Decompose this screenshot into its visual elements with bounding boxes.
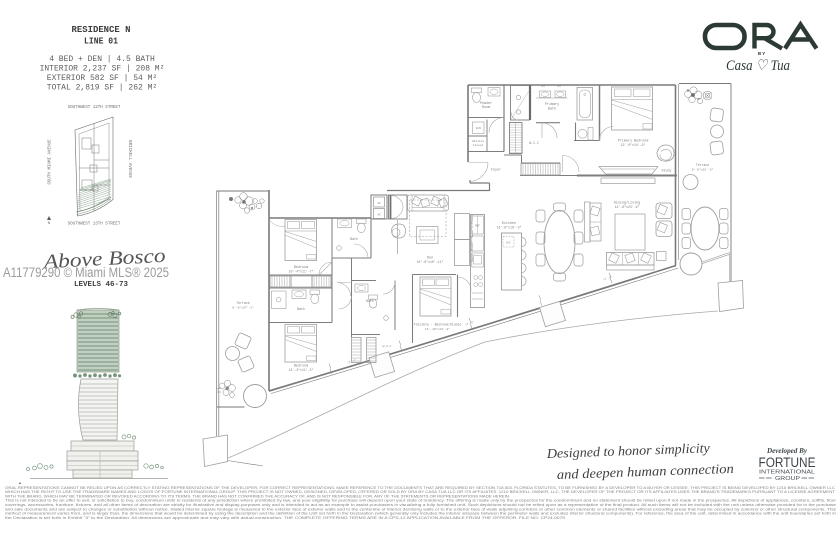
svg-text:Utility: Utility <box>472 139 484 143</box>
svg-text:9'-8"x27'-1": 9'-8"x27'-1" <box>232 305 254 309</box>
svg-text:REF: REF <box>475 225 480 228</box>
svg-text:INTERIOR 2,237 SF | 208 M²: INTERIOR 2,237 SF | 208 M² <box>40 65 165 74</box>
svg-text:LINE 01: LINE 01 <box>84 37 119 47</box>
svg-text:Flexible - Bedroom/Studio: Flexible - Bedroom/Studio <box>414 323 462 327</box>
svg-text:GROUP: GROUP <box>775 476 800 482</box>
svg-text:14'-3"x11'-5": 14'-3"x11'-5" <box>289 368 314 372</box>
svg-text:SOUTHWEST 13TH STREET: SOUTHWEST 13TH STREET <box>68 223 121 227</box>
svg-text:Terrace: Terrace <box>236 301 249 305</box>
svg-text:10'-6"x10'-11": 10'-6"x10'-11" <box>417 260 444 264</box>
svg-text:AC: AC <box>378 202 382 205</box>
svg-text:Owner's Closet: Owner's Closet <box>470 214 474 237</box>
svg-text:Terrace: Terrace <box>696 163 709 167</box>
svg-text:Casa ♡ Tua: Casa ♡ Tua <box>726 58 790 74</box>
svg-text:10'-4"x11'-7": 10'-4"x11'-7" <box>289 270 314 274</box>
svg-text:Study: Study <box>662 169 672 173</box>
svg-text:Developed By: Developed By <box>766 446 807 455</box>
svg-text:TOTAL 2,819 SF | 262 M²: TOTAL 2,819 SF | 262 M² <box>47 84 157 93</box>
svg-text:4 BED + DEN | 4.5 BATH: 4 BED + DEN | 4.5 BATH <box>49 55 155 64</box>
svg-text:LEVELS 46-73: LEVELS 46-73 <box>74 281 128 289</box>
svg-text:Bath: Bath <box>297 307 305 311</box>
svg-text:W/D: W/D <box>476 126 481 130</box>
svg-text:AC: AC <box>378 214 382 217</box>
svg-text:BRICKELL AVENUE: BRICKELL AVENUE <box>127 140 131 178</box>
svg-text:Foyer: Foyer <box>491 168 501 172</box>
svg-text:SOUTH MIAMI AVENUE: SOUTH MIAMI AVENUE <box>49 139 53 185</box>
svg-text:Bath: Bath <box>366 299 374 303</box>
svg-text:Bath: Bath <box>548 107 556 112</box>
svg-text:A11779290 © Miami MLS® 2025: A11779290 © Miami MLS® 2025 <box>3 265 169 280</box>
svg-text:W.I.C: W.I.C <box>529 141 539 145</box>
svg-text:FORTUNE: FORTUNE <box>759 455 816 470</box>
svg-text:SOUTHWEST 12TH STREET: SOUTHWEST 12TH STREET <box>68 106 121 110</box>
svg-text:16'-8"x19'-3": 16'-8"x19'-3" <box>497 225 522 229</box>
svg-text:EXTERIOR 582 SF | 54 M²: EXTERIOR 582 SF | 54 M² <box>47 74 157 83</box>
svg-text:11'-10"x13'-8": 11'-10"x13'-8" <box>425 327 450 331</box>
svg-text:9'-0"x36'-5": 9'-0"x36'-5" <box>692 167 714 171</box>
svg-text:Room: Room <box>482 106 490 110</box>
svg-text:Guest Closet: Guest Closet <box>470 242 474 262</box>
svg-text:BY: BY <box>758 51 766 56</box>
svg-text:RESIDENCE N: RESIDENCE N <box>72 25 131 35</box>
svg-text:the Declaration is set forth i: the Declaration is set forth in Exhibit … <box>5 516 565 520</box>
svg-text:Closet: Closet <box>473 143 484 147</box>
svg-text:13'-0"x14'-9": 13'-0"x14'-9" <box>621 143 646 147</box>
svg-text:W.I.C: W.I.C <box>383 345 392 348</box>
svg-text:Primary: Primary <box>545 102 559 107</box>
svg-text:14'-6"x23'-9": 14'-6"x23'-9" <box>615 205 640 209</box>
svg-text:Bath: Bath <box>350 237 358 241</box>
svg-text:INTERNATIONAL: INTERNATIONAL <box>759 470 815 476</box>
svg-text:W/C: W/C <box>506 241 511 245</box>
